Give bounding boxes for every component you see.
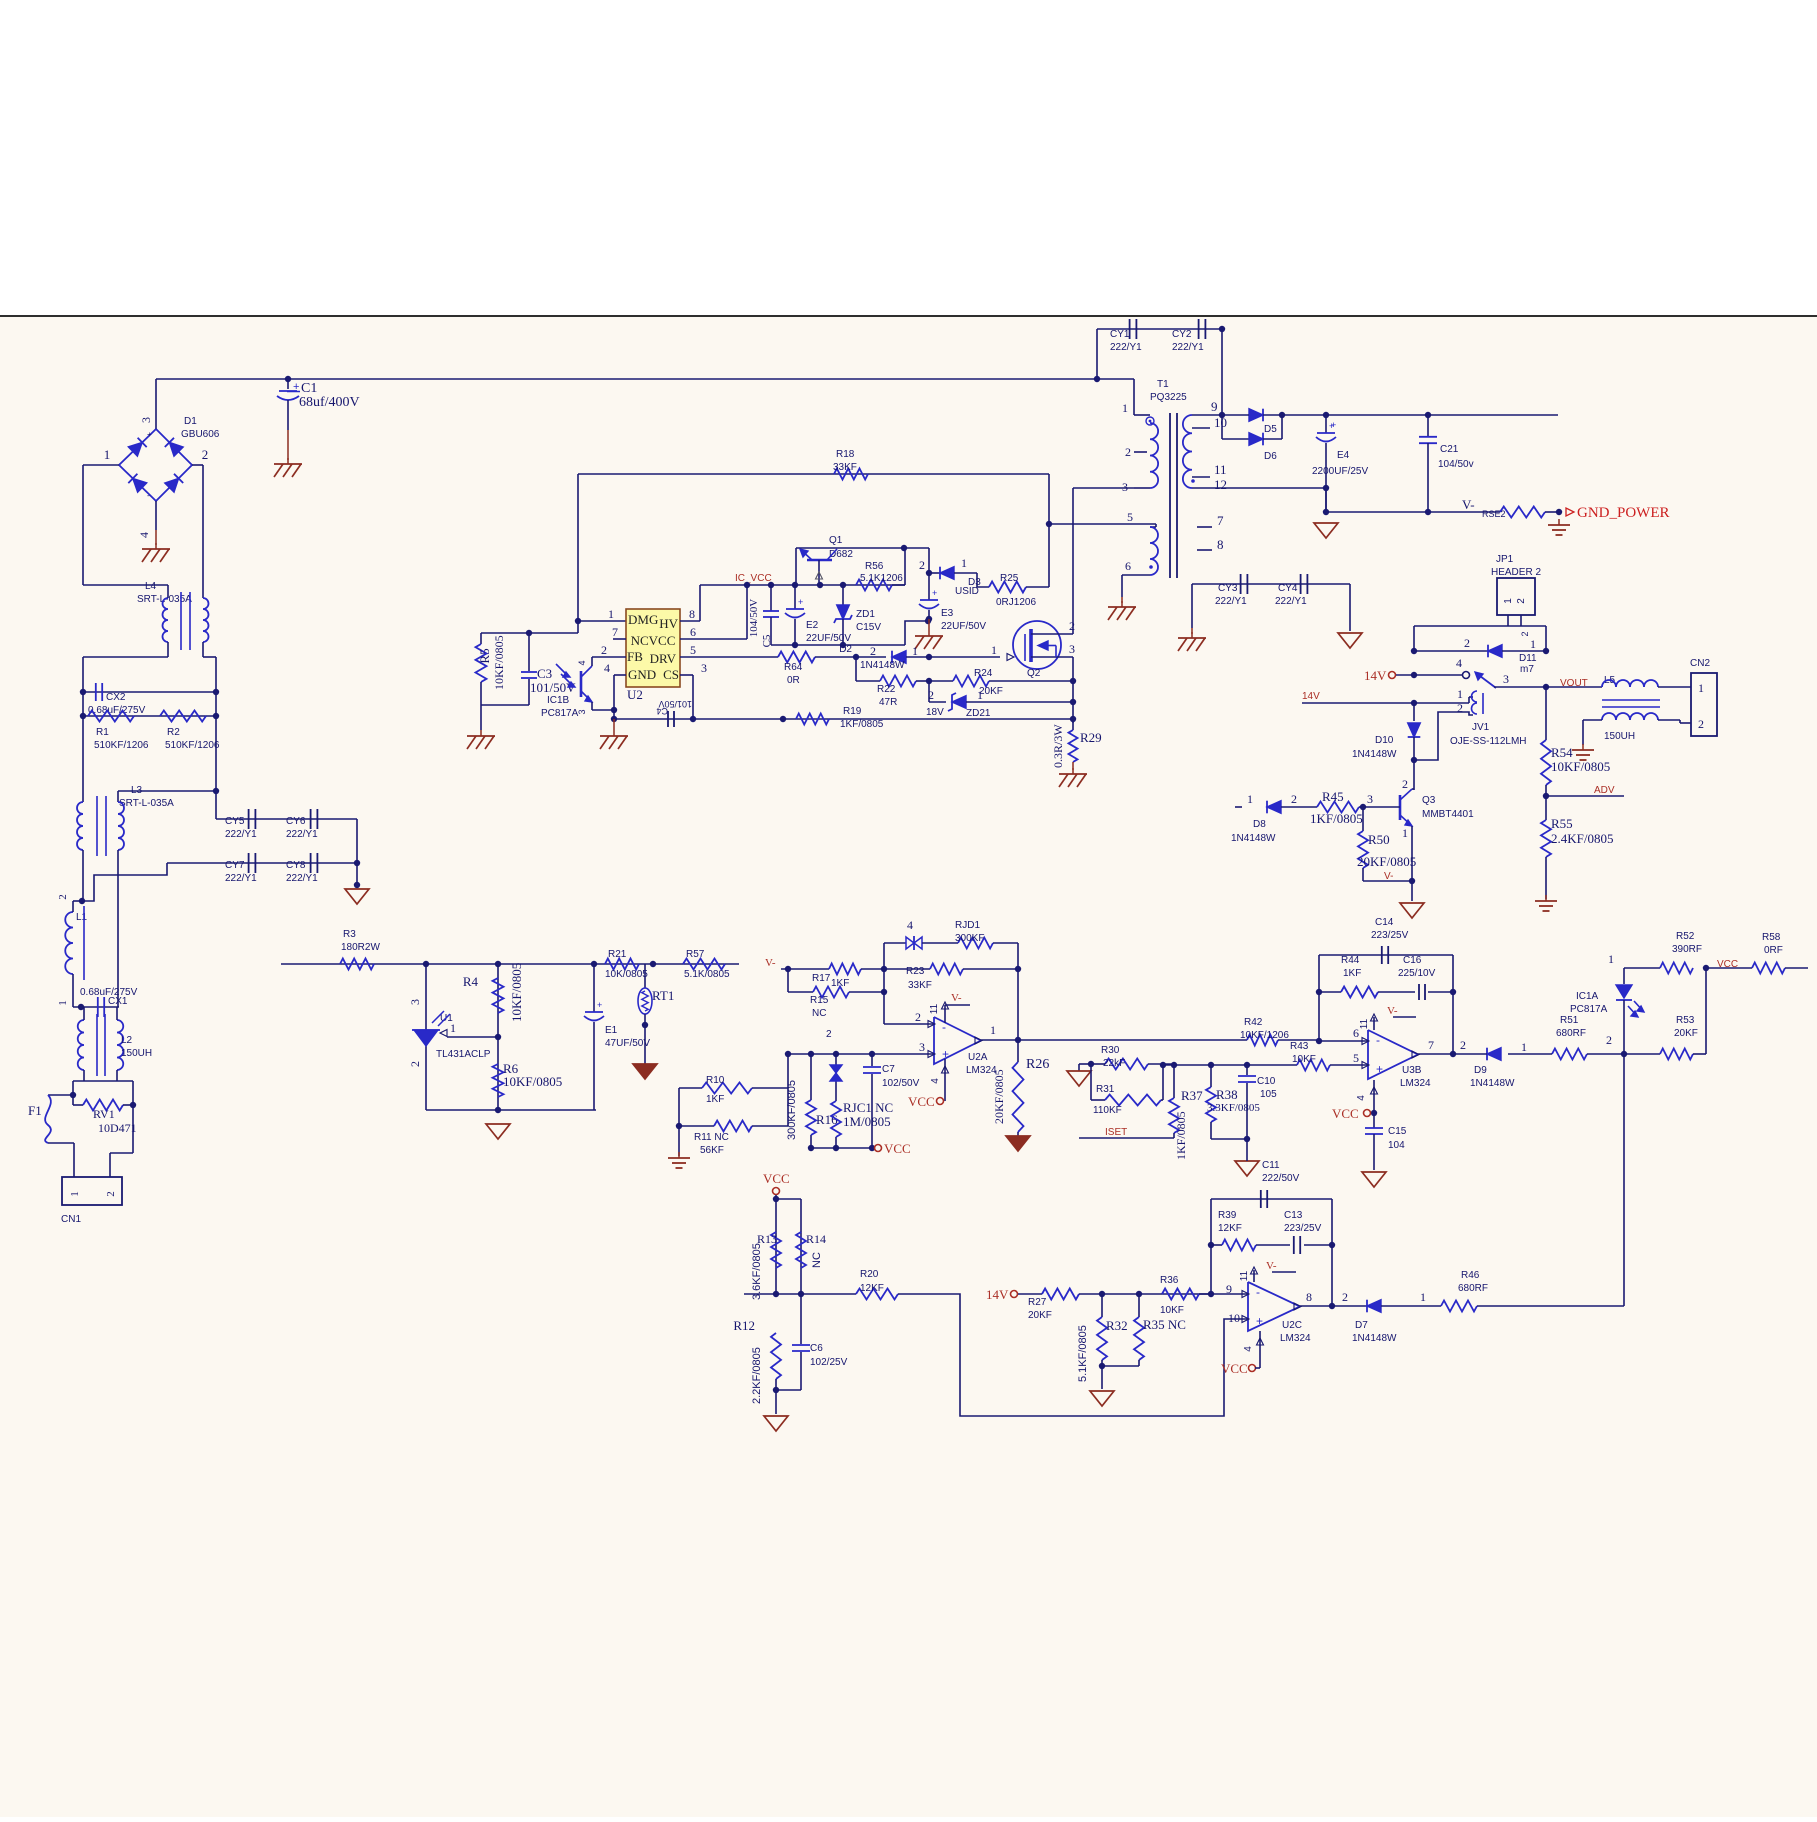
svg-text:5.1K/0805: 5.1K/0805 <box>684 969 730 980</box>
svg-text:RJC1 NC: RJC1 NC <box>843 1100 893 1115</box>
svg-text:L2: L2 <box>121 1035 133 1046</box>
svg-text:104/50v: 104/50v <box>1438 459 1474 470</box>
svg-text:1KF/0805: 1KF/0805 <box>1310 811 1363 826</box>
svg-text:225/10V: 225/10V <box>1398 968 1436 979</box>
svg-text:R12: R12 <box>733 1318 755 1333</box>
svg-text:10KF/0805: 10KF/0805 <box>509 963 524 1022</box>
svg-text:33KF: 33KF <box>833 462 857 473</box>
svg-text:RT1: RT1 <box>652 988 674 1003</box>
svg-text:JV1: JV1 <box>1472 722 1490 733</box>
svg-text:V-: V- <box>1462 497 1475 512</box>
svg-text:2: 2 <box>826 1029 832 1040</box>
svg-text:2: 2 <box>105 1191 117 1197</box>
svg-text:8: 8 <box>689 607 695 621</box>
svg-text:4: 4 <box>1356 1095 1367 1101</box>
svg-text:SRT-L-035A: SRT-L-035A <box>119 798 174 809</box>
svg-text:300KF/0805: 300KF/0805 <box>786 1080 798 1140</box>
svg-text:6: 6 <box>690 625 696 639</box>
svg-text:VCC: VCC <box>1332 1106 1359 1121</box>
svg-text:20KF: 20KF <box>1028 1310 1052 1321</box>
svg-text:6: 6 <box>1353 1026 1359 1040</box>
svg-text:C15: C15 <box>1388 1126 1407 1137</box>
svg-text:680RF: 680RF <box>1556 1028 1586 1039</box>
svg-text:104: 104 <box>1388 1140 1405 1151</box>
svg-text:R45: R45 <box>1322 789 1344 804</box>
svg-text:0R: 0R <box>787 675 800 686</box>
svg-text:U2A: U2A <box>968 1052 988 1063</box>
svg-text:390RF: 390RF <box>1672 944 1702 955</box>
svg-text:CX1: CX1 <box>108 996 128 1007</box>
svg-text:510KF/1206: 510KF/1206 <box>94 740 149 751</box>
svg-text:R11 NC: R11 NC <box>694 1132 729 1143</box>
svg-text:R31: R31 <box>1096 1084 1115 1095</box>
svg-text:+: + <box>1376 1062 1383 1076</box>
svg-text:10KF: 10KF <box>1160 1305 1184 1316</box>
svg-text:V-: V- <box>1387 1005 1398 1017</box>
svg-text:11: 11 <box>1359 1018 1370 1029</box>
svg-text:22UF/50V: 22UF/50V <box>941 621 986 632</box>
svg-text:5.1KF/0805: 5.1KF/0805 <box>1077 1325 1089 1382</box>
svg-text:104/50V: 104/50V <box>748 599 760 638</box>
svg-text:1: 1 <box>1247 792 1253 806</box>
svg-text:4: 4 <box>577 660 587 665</box>
svg-text:2.2KF/0805: 2.2KF/0805 <box>751 1347 763 1404</box>
svg-text:1: 1 <box>1530 637 1536 651</box>
svg-text:IC1B: IC1B <box>547 695 570 706</box>
svg-text:D5: D5 <box>1264 424 1277 435</box>
svg-text:R43: R43 <box>1290 1041 1309 1052</box>
svg-text:20KF/0805: 20KF/0805 <box>992 1069 1006 1124</box>
svg-text:20KF/0805: 20KF/0805 <box>1357 854 1416 869</box>
svg-text:4: 4 <box>907 918 913 932</box>
svg-text:1: 1 <box>961 556 967 570</box>
svg-text:R26: R26 <box>1026 1057 1049 1072</box>
svg-text:2: 2 <box>928 688 934 702</box>
svg-text:D8: D8 <box>1253 819 1266 830</box>
svg-text:R46: R46 <box>1461 1270 1480 1281</box>
svg-text:R38: R38 <box>1216 1087 1238 1102</box>
svg-text:C16: C16 <box>1403 955 1422 966</box>
svg-text:VCC: VCC <box>1221 1361 1248 1376</box>
svg-text:DMG: DMG <box>628 612 658 627</box>
svg-text:R53: R53 <box>1676 1015 1695 1026</box>
svg-text:14V: 14V <box>1364 668 1387 683</box>
svg-text:IC_VCC: IC_VCC <box>735 573 772 584</box>
svg-text:V-: V- <box>951 992 962 1004</box>
svg-text:14V: 14V <box>1302 691 1320 702</box>
svg-text:1N4148W: 1N4148W <box>1470 1078 1515 1089</box>
svg-text:E1: E1 <box>605 1025 618 1036</box>
svg-text:+: + <box>1256 1314 1263 1328</box>
svg-text:R54: R54 <box>1551 745 1573 760</box>
svg-text:JP1: JP1 <box>1496 554 1514 565</box>
svg-text:0.68uF/275V: 0.68uF/275V <box>88 705 146 716</box>
svg-text:680RF: 680RF <box>1458 1283 1488 1294</box>
svg-text:ZD21: ZD21 <box>966 708 991 719</box>
svg-text:-: - <box>1256 1285 1260 1299</box>
svg-text:5.1K1206: 5.1K1206 <box>860 573 903 584</box>
svg-text:12KF: 12KF <box>1218 1223 1242 1234</box>
svg-text:R1: R1 <box>96 727 109 738</box>
svg-text:2.4KF/0805: 2.4KF/0805 <box>1551 831 1613 846</box>
svg-text:10KF/0805: 10KF/0805 <box>1551 759 1610 774</box>
svg-text:C10: C10 <box>1257 1076 1276 1087</box>
svg-text:PC817A: PC817A <box>541 708 579 719</box>
svg-text:R20: R20 <box>860 1269 879 1280</box>
svg-text:3.6KF/0805: 3.6KF/0805 <box>751 1243 763 1300</box>
svg-text:Q3: Q3 <box>1422 795 1436 806</box>
svg-text:D10: D10 <box>1375 735 1394 746</box>
svg-text:10KF/0805: 10KF/0805 <box>503 1074 562 1089</box>
svg-text:-: - <box>1376 1033 1380 1047</box>
svg-text:47UF/50V: 47UF/50V <box>605 1038 650 1049</box>
svg-text:T1: T1 <box>1157 379 1169 390</box>
svg-text:L4: L4 <box>145 581 157 592</box>
svg-text:R30: R30 <box>1101 1045 1120 1056</box>
svg-text:7: 7 <box>1217 513 1224 528</box>
svg-text:E2: E2 <box>806 620 819 631</box>
svg-text:R17: R17 <box>812 973 831 984</box>
svg-text:CY3: CY3 <box>1218 583 1238 594</box>
svg-text:222/Y1: 222/Y1 <box>1110 342 1142 353</box>
svg-text:11: 11 <box>1214 462 1227 477</box>
svg-text:R35 NC: R35 NC <box>1143 1317 1186 1332</box>
svg-text:2: 2 <box>1464 636 1470 650</box>
svg-text:222/Y1: 222/Y1 <box>225 829 257 840</box>
svg-text:3: 3 <box>1122 480 1128 494</box>
svg-text:R23: R23 <box>906 966 925 977</box>
svg-text:D1: D1 <box>184 416 197 427</box>
svg-text:56KF: 56KF <box>700 1145 724 1156</box>
svg-text:+: + <box>147 430 152 439</box>
svg-text:3: 3 <box>701 661 707 675</box>
svg-text:R3: R3 <box>343 929 356 940</box>
svg-text:3: 3 <box>1503 672 1509 686</box>
svg-text:E4: E4 <box>1337 450 1350 461</box>
svg-text:CN2: CN2 <box>1690 658 1710 669</box>
svg-text:OJE-SS-112LMH: OJE-SS-112LMH <box>1450 736 1527 747</box>
svg-text:R29: R29 <box>1080 730 1102 745</box>
svg-text:1KF/0805: 1KF/0805 <box>840 719 884 730</box>
svg-text:R39: R39 <box>1218 1210 1237 1221</box>
svg-text:1KF/0805: 1KF/0805 <box>1174 1111 1188 1160</box>
svg-text:R4: R4 <box>463 974 479 989</box>
svg-text:RV1: RV1 <box>93 1107 115 1121</box>
svg-text:22kF: 22kF <box>1103 1058 1125 1069</box>
svg-text:R19: R19 <box>843 706 862 717</box>
svg-text:4: 4 <box>930 1078 941 1084</box>
svg-text:1: 1 <box>69 1191 81 1197</box>
svg-text:ZD1: ZD1 <box>856 609 875 620</box>
svg-text:1: 1 <box>1402 826 1408 840</box>
svg-text:2: 2 <box>1520 631 1530 636</box>
svg-text:2: 2 <box>57 894 69 900</box>
svg-text:2: 2 <box>1606 1033 1612 1047</box>
svg-text:0RF: 0RF <box>1764 945 1783 956</box>
svg-text:R64: R64 <box>784 662 803 673</box>
svg-text:R44: R44 <box>1341 955 1360 966</box>
svg-text:CY5: CY5 <box>225 816 245 827</box>
svg-text:C6: C6 <box>810 1343 823 1354</box>
svg-text:101/50V: 101/50V <box>658 699 692 709</box>
svg-text:12: 12 <box>1214 477 1227 492</box>
svg-text:D2: D2 <box>839 644 852 655</box>
svg-text:3: 3 <box>408 999 422 1005</box>
svg-text:C15V: C15V <box>856 622 881 633</box>
svg-text:1: 1 <box>977 688 983 702</box>
svg-text:PQ3225: PQ3225 <box>1150 392 1187 403</box>
svg-text:2: 2 <box>1125 445 1131 459</box>
svg-text:C13: C13 <box>1284 1210 1303 1221</box>
svg-text:300KF: 300KF <box>955 933 984 944</box>
svg-text:1M/0805: 1M/0805 <box>843 1114 891 1129</box>
svg-text:NCVCC: NCVCC <box>631 633 676 648</box>
svg-text:7: 7 <box>1428 1038 1434 1052</box>
svg-text:HV: HV <box>659 616 678 631</box>
svg-text:R36: R36 <box>1160 1275 1179 1286</box>
svg-text:3: 3 <box>1069 642 1075 656</box>
svg-text:1: 1 <box>1457 687 1463 701</box>
svg-text:8: 8 <box>1217 537 1224 552</box>
svg-text:LM324: LM324 <box>1400 1078 1431 1089</box>
svg-text:2: 2 <box>870 644 876 658</box>
svg-text:2: 2 <box>919 558 925 572</box>
svg-text:33KF: 33KF <box>908 980 932 991</box>
svg-text:9: 9 <box>1226 1282 1232 1296</box>
svg-text:222/Y1: 222/Y1 <box>286 873 318 884</box>
svg-text:5: 5 <box>1127 510 1133 524</box>
svg-text:R22: R22 <box>877 684 896 695</box>
svg-text:D6: D6 <box>1264 451 1277 462</box>
svg-text:R25: R25 <box>1000 573 1019 584</box>
svg-text:R5: R5 <box>477 648 492 663</box>
svg-text:150UH: 150UH <box>121 1048 152 1059</box>
svg-text:1: 1 <box>450 1021 456 1035</box>
svg-text:L1: L1 <box>76 912 88 923</box>
svg-text:1: 1 <box>1608 952 1614 966</box>
svg-text:10D471: 10D471 <box>98 1121 137 1135</box>
svg-text:1: 1 <box>1698 681 1704 695</box>
svg-text:D7: D7 <box>1355 1320 1368 1331</box>
svg-text:CY6: CY6 <box>286 816 306 827</box>
svg-text:R57: R57 <box>686 949 705 960</box>
svg-text:HEADER 2: HEADER 2 <box>1491 567 1541 578</box>
svg-text:6: 6 <box>1125 559 1131 573</box>
svg-text:VCC: VCC <box>908 1094 935 1109</box>
svg-text:2200UF/25V: 2200UF/25V <box>1312 466 1368 477</box>
svg-text:1: 1 <box>1420 1290 1426 1304</box>
svg-text:11: 11 <box>929 1003 940 1014</box>
svg-text:222/Y1: 222/Y1 <box>1215 596 1247 607</box>
svg-text:1: 1 <box>608 607 614 621</box>
svg-text:R18: R18 <box>836 449 855 460</box>
svg-text:110KF: 110KF <box>1093 1105 1122 1116</box>
svg-text:7: 7 <box>612 625 618 639</box>
svg-text:V-: V- <box>765 957 776 969</box>
svg-text:150UH: 150UH <box>1604 731 1635 742</box>
svg-text:C21: C21 <box>1440 444 1459 455</box>
svg-text:2: 2 <box>1516 598 1527 604</box>
svg-text:2: 2 <box>1460 1038 1466 1052</box>
svg-text:R37: R37 <box>1181 1088 1203 1103</box>
svg-text:USID: USID <box>955 586 979 597</box>
svg-text:10KF/0805: 10KF/0805 <box>492 635 506 690</box>
svg-text:1KF: 1KF <box>706 1094 724 1105</box>
svg-text:U3B: U3B <box>1402 1065 1422 1076</box>
svg-text:CY2: CY2 <box>1172 329 1192 340</box>
svg-text:F1: F1 <box>28 1103 42 1118</box>
svg-text:R21: R21 <box>608 949 627 960</box>
svg-text:FB: FB <box>627 649 643 664</box>
svg-text:Q1: Q1 <box>829 535 843 546</box>
svg-text:+: + <box>942 1047 949 1061</box>
svg-text:102/50V: 102/50V <box>882 1078 920 1089</box>
svg-text:0.3R/3W: 0.3R/3W <box>1051 724 1065 768</box>
svg-text:223/25V: 223/25V <box>1284 1223 1322 1234</box>
svg-text:2: 2 <box>1457 701 1463 715</box>
svg-text:CY4: CY4 <box>1278 583 1298 594</box>
svg-text:CN1: CN1 <box>61 1214 81 1225</box>
svg-text:2: 2 <box>202 447 209 462</box>
svg-text:R58: R58 <box>1762 932 1781 943</box>
svg-text:+: + <box>932 588 937 598</box>
svg-text:+: + <box>597 1000 602 1010</box>
svg-text:ISET: ISET <box>1105 1127 1127 1138</box>
svg-text:180R2W: 180R2W <box>341 942 380 953</box>
svg-text:C14: C14 <box>1375 917 1394 928</box>
svg-text:1: 1 <box>104 447 111 462</box>
svg-text:0RJ1206: 0RJ1206 <box>996 597 1036 608</box>
svg-text:CY7: CY7 <box>225 860 245 871</box>
svg-text:1: 1 <box>912 644 918 658</box>
svg-text:4: 4 <box>1243 1346 1254 1352</box>
svg-text:R42: R42 <box>1244 1017 1263 1028</box>
svg-text:10K/0805: 10K/0805 <box>605 969 648 980</box>
svg-text:47R: 47R <box>879 697 897 708</box>
svg-text:1N4148W: 1N4148W <box>1352 1333 1397 1344</box>
svg-text:10: 10 <box>1228 1311 1240 1325</box>
svg-text:R51: R51 <box>1560 1015 1579 1026</box>
svg-text:1: 1 <box>991 643 997 657</box>
svg-text:1N4148W: 1N4148W <box>1231 833 1276 844</box>
svg-text:1N4148W: 1N4148W <box>860 660 905 671</box>
svg-text:4: 4 <box>137 532 151 538</box>
svg-text:R52: R52 <box>1676 931 1695 942</box>
svg-text:1: 1 <box>1503 598 1514 604</box>
svg-text:9: 9 <box>1211 399 1218 414</box>
svg-text:RJD1: RJD1 <box>955 920 980 931</box>
svg-text:RSE2: RSE2 <box>1482 509 1506 519</box>
svg-text:R56: R56 <box>865 561 884 572</box>
svg-text:3: 3 <box>577 709 587 714</box>
svg-text:R50: R50 <box>1368 832 1390 847</box>
svg-text:1: 1 <box>57 1000 69 1006</box>
svg-text:2: 2 <box>1342 1290 1348 1304</box>
svg-text:2: 2 <box>1291 792 1297 806</box>
svg-text:20KF: 20KF <box>1674 1028 1698 1039</box>
svg-text:VCC: VCC <box>763 1171 790 1186</box>
svg-text:L3: L3 <box>131 785 143 796</box>
svg-text:E3: E3 <box>941 608 954 619</box>
svg-text:C3: C3 <box>537 666 552 681</box>
svg-text:VCC: VCC <box>884 1141 911 1156</box>
svg-text:14V: 14V <box>986 1287 1009 1302</box>
svg-text:3: 3 <box>919 1040 925 1054</box>
svg-text:C7: C7 <box>882 1064 895 1075</box>
svg-text:2: 2 <box>1402 777 1408 791</box>
svg-text:1KF: 1KF <box>1343 968 1361 979</box>
svg-text:R15: R15 <box>810 995 829 1006</box>
svg-text:CX2: CX2 <box>106 692 126 703</box>
svg-text:ADV: ADV <box>1594 785 1615 796</box>
svg-text:2: 2 <box>1069 619 1075 633</box>
svg-text:R32: R32 <box>1106 1318 1128 1333</box>
svg-text:5: 5 <box>1353 1051 1359 1065</box>
svg-text:CY8: CY8 <box>286 860 306 871</box>
svg-text:Q2: Q2 <box>1027 668 1041 679</box>
svg-text:222/Y1: 222/Y1 <box>225 873 257 884</box>
svg-text:GBU606: GBU606 <box>181 429 220 440</box>
svg-text:5: 5 <box>690 643 696 657</box>
svg-text:GND: GND <box>628 667 656 682</box>
svg-text:IC1A: IC1A <box>1576 991 1599 1002</box>
svg-text:1: 1 <box>990 1023 996 1037</box>
svg-text:R55: R55 <box>1551 816 1573 831</box>
svg-text:-: - <box>147 491 150 500</box>
svg-text:2: 2 <box>601 643 607 657</box>
svg-text:10KF: 10KF <box>1292 1054 1316 1065</box>
svg-text:2: 2 <box>1698 717 1704 731</box>
svg-text:R14: R14 <box>806 1232 826 1246</box>
svg-text:3: 3 <box>1367 792 1373 806</box>
svg-text:1: 1 <box>1122 401 1128 415</box>
svg-text:2: 2 <box>408 1061 422 1067</box>
svg-text:18V: 18V <box>926 707 944 718</box>
svg-text:1: 1 <box>1521 1040 1527 1054</box>
svg-text:222/Y1: 222/Y1 <box>286 829 318 840</box>
svg-text:NC: NC <box>812 1008 826 1019</box>
svg-text:12KF: 12KF <box>860 1283 884 1294</box>
svg-text:68uf/400V: 68uf/400V <box>299 395 360 410</box>
svg-text:V-: V- <box>1266 1260 1277 1272</box>
svg-text:U2C: U2C <box>1282 1320 1302 1331</box>
svg-text:LM324: LM324 <box>1280 1333 1311 1344</box>
svg-text:11: 11 <box>1239 1270 1250 1281</box>
svg-text:R10: R10 <box>706 1075 725 1086</box>
svg-text:222/50V: 222/50V <box>1262 1173 1300 1184</box>
svg-text:TL431ACLP: TL431ACLP <box>436 1049 491 1060</box>
svg-text:CS: CS <box>663 667 679 682</box>
svg-text:MMBT4401: MMBT4401 <box>1422 809 1474 820</box>
svg-text:R2: R2 <box>167 727 180 738</box>
svg-text:D9: D9 <box>1474 1065 1487 1076</box>
svg-text:U2: U2 <box>627 687 643 702</box>
svg-text:+: + <box>1329 421 1334 431</box>
svg-text:m7: m7 <box>1520 664 1534 675</box>
svg-text:C1: C1 <box>301 381 317 396</box>
svg-text:CY1: CY1 <box>1110 329 1130 340</box>
svg-text:1N4148W: 1N4148W <box>1352 749 1397 760</box>
svg-text:223/25V: 223/25V <box>1371 930 1409 941</box>
svg-text:105: 105 <box>1260 1089 1277 1100</box>
svg-text:4: 4 <box>1456 656 1462 670</box>
svg-text:3.3KF/0805: 3.3KF/0805 <box>1207 1102 1260 1114</box>
svg-text:R24: R24 <box>974 668 993 679</box>
svg-text:102/25V: 102/25V <box>810 1357 848 1368</box>
svg-text:3: 3 <box>139 417 153 423</box>
svg-text:222/Y1: 222/Y1 <box>1275 596 1307 607</box>
svg-text:PC817A: PC817A <box>1570 1004 1608 1015</box>
